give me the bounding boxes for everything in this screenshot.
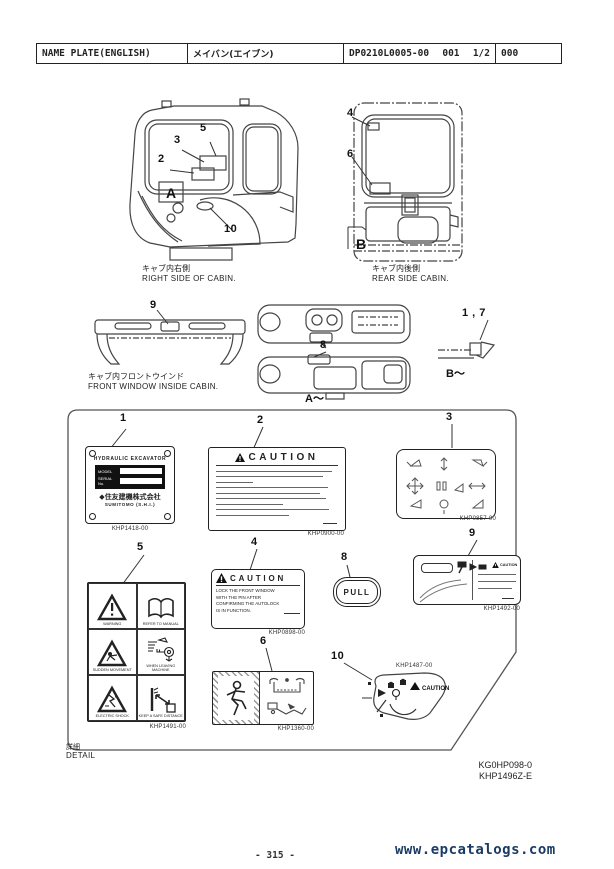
- caution-text-line: CONFIRMING THE AUTOLOCK: [216, 601, 300, 608]
- hammer-break-diagram: [264, 700, 310, 720]
- part-number: KHP1491-00: [126, 724, 186, 730]
- text-line: [216, 487, 328, 488]
- caption-front-window-en: FRONT WINDOW INSIDE CABIN.: [88, 382, 218, 391]
- warning-label: SUDDEN MOVEMENT: [93, 668, 132, 672]
- text-line: [216, 504, 283, 505]
- section-ref-b: B～: [446, 365, 465, 381]
- section-marker-a: A: [166, 185, 176, 201]
- doc-number: DP0210L0005-00: [349, 48, 429, 59]
- brand-ja: 住友建機株式会社: [105, 493, 161, 501]
- front-window-drawing: [85, 298, 255, 378]
- remove-key-icon: [145, 636, 177, 663]
- section-ref-a: A～: [305, 390, 324, 406]
- callout-5-detail: 5: [137, 541, 144, 553]
- curve-lines: [417, 574, 469, 602]
- drawing-ref-1: KG0HP098-0: [430, 760, 532, 771]
- text-line: [216, 471, 332, 472]
- text-line: [216, 482, 253, 483]
- control-pattern-icons: [397, 450, 494, 517]
- caution-text-line: LOCK THE FRONT WINDOW: [216, 588, 300, 595]
- part-number: KHP0900-00: [284, 531, 344, 537]
- caution-title: CAUTION: [248, 452, 318, 463]
- text-line: [216, 493, 320, 494]
- callout-4-detail: 4: [251, 536, 258, 548]
- exit-instruction-cell: [260, 672, 313, 724]
- part-number: KHP0857-00: [436, 516, 496, 522]
- exit-door-frame: [218, 676, 254, 720]
- page-number: - 315 -: [225, 850, 325, 861]
- name-plate: HYDRAULIC EXCAVATOR MODEL SERIAL No. ◆住友…: [85, 446, 175, 524]
- detail-label-en: DETAIL: [66, 751, 95, 760]
- pull-tag: PULL: [333, 577, 381, 607]
- callout-3-cabin: 3: [174, 134, 181, 146]
- callout-6-cabin: 6: [347, 148, 354, 160]
- callout-10-cabin: 10: [224, 223, 237, 235]
- warning-grid-plate: WARNING REFER TO MANUAL SUDDEN MOVEMENT: [87, 582, 186, 722]
- warning-cell: KEEP A SAFE DISTANCE: [137, 675, 186, 721]
- divider: [216, 465, 338, 466]
- callout-9-detail: 9: [469, 527, 476, 539]
- doc-sheet: 001: [442, 48, 459, 59]
- manual-book-icon: [146, 594, 176, 621]
- screw-icon: [89, 513, 96, 520]
- callout-3-detail: 3: [446, 411, 453, 423]
- warning-triangle-icon: [235, 453, 245, 462]
- header-bar: NAME PLATE(ENGLISH) メイバン(エイブン) DP0210L00…: [36, 43, 562, 64]
- model-field-label: MODEL: [98, 469, 118, 474]
- serial-field-label: SERIAL No.: [98, 476, 118, 486]
- header-title-ja: メイバン(エイブン): [188, 44, 344, 63]
- warning-triangle-icon: [492, 562, 499, 568]
- warning-label: WARNING: [103, 622, 121, 626]
- text-line: [216, 476, 323, 477]
- warning-cell: ELECTRIC SHOCK: [88, 675, 137, 721]
- caution-title: CAUTION: [422, 686, 449, 692]
- model-field-value: [120, 468, 162, 474]
- serial-field-value: [120, 478, 162, 484]
- keep-distance-icon: [145, 686, 177, 713]
- pull-label: PULL: [336, 580, 378, 604]
- emergency-exit-plate: [212, 671, 314, 725]
- callout-8-console: 8: [320, 339, 327, 351]
- divider: [216, 585, 300, 586]
- lock-lever-caution-plate: CAUTION: [360, 668, 452, 726]
- caution-title: CAUTION: [230, 574, 286, 583]
- text-line: [478, 588, 512, 589]
- text-line: [216, 509, 329, 510]
- window-push-diagram: [264, 676, 310, 696]
- text-line: [478, 574, 516, 575]
- warning-cell: REFER TO MANUAL: [137, 583, 186, 629]
- callout-5-cabin: 5: [200, 122, 207, 134]
- warning-label: ELECTRIC SHOCK: [96, 714, 129, 718]
- signature-line: [284, 613, 300, 614]
- electric-shock-icon: [97, 686, 127, 713]
- caution-title: CAUTION: [500, 563, 517, 567]
- callout-2-detail: 2: [257, 414, 264, 426]
- text-line: [216, 515, 289, 516]
- callout-1-7-bracket: 1 , 7: [462, 307, 486, 319]
- caution-plate-large: CAUTION: [208, 447, 346, 531]
- part-number: KHP0898-00: [235, 630, 305, 636]
- drawing-ref-2: KHP1496Z-E: [430, 771, 532, 782]
- caption-rear-side-ja: キャブ内後側: [372, 263, 420, 274]
- text-line: [478, 581, 516, 582]
- callout-4-cabin: 4: [347, 107, 354, 119]
- slot-shape: [421, 563, 453, 573]
- part-number: KHP1360-00: [248, 726, 314, 732]
- callout-6-detail: 6: [260, 635, 267, 647]
- warning-cell: WARNING: [88, 583, 137, 629]
- console-drawing: [250, 295, 425, 400]
- warning-label: WHEN LEAVING MACHINE: [139, 664, 184, 672]
- warning-label: REFER TO MANUAL: [143, 622, 179, 626]
- caption-right-side-ja: キャブ内右側: [142, 263, 190, 274]
- warning-label: KEEP A SAFE DISTANCE: [139, 714, 183, 718]
- brand-en: SUMITOMO (S.H.I.): [86, 502, 174, 507]
- name-plate-fields: MODEL SERIAL No.: [95, 465, 165, 489]
- warning-triangle-icon: [216, 573, 227, 583]
- screw-icon: [89, 450, 96, 457]
- callout-1-detail: 1: [120, 412, 127, 424]
- header-doc-cell: DP0210L0005-00 001 1/2: [344, 44, 496, 63]
- callout-2-cabin: 2: [158, 153, 165, 165]
- signature-line: [323, 523, 337, 524]
- hammer-caution-plate: CAUTION: [413, 555, 521, 605]
- part-number: KHP1418-00: [85, 526, 175, 532]
- site-watermark-link[interactable]: www.epcatalogs.com: [395, 842, 556, 858]
- caution-text-line: WITH THE PIN AFTER: [216, 595, 300, 602]
- section-marker-b: B: [356, 236, 366, 252]
- control-pattern-plate: [396, 449, 496, 519]
- screw-icon: [164, 513, 171, 520]
- caption-rear-side-en: REAR SIDE CABIN.: [372, 274, 449, 283]
- hammer-icon: [454, 560, 490, 574]
- rear-side-cabin-drawing: B: [340, 97, 475, 269]
- name-plate-title: HYDRAULIC EXCAVATOR: [86, 456, 174, 462]
- caution-text-line: IS IN FUNCTION.: [216, 608, 251, 615]
- warning-triangle-icon: [97, 594, 127, 621]
- text-line: [216, 498, 326, 499]
- warning-cell: SUDDEN MOVEMENT: [88, 629, 137, 675]
- sudden-movement-icon: [97, 640, 127, 667]
- doc-page: 1/2: [473, 48, 490, 59]
- catalog-page: NAME PLATE(ENGLISH) メイバン(エイブン) DP0210L00…: [0, 0, 614, 869]
- callout-8-detail: 8: [341, 551, 348, 563]
- callout-10-detail: 10: [331, 650, 344, 662]
- front-window-caution-plate: CAUTION LOCK THE FRONT WINDOW WITH THE P…: [211, 569, 305, 629]
- part-number: KHP1492-00: [452, 606, 520, 612]
- caption-front-window-ja: キャブ内フロントウインド: [88, 371, 184, 382]
- caption-right-side-en: RIGHT SIDE OF CABIN.: [142, 274, 236, 283]
- callout-9-window: 9: [150, 299, 157, 311]
- exit-pictogram-cell: [213, 672, 260, 724]
- running-person-icon: [218, 676, 254, 720]
- screw-icon: [164, 450, 171, 457]
- signature-line: [502, 598, 514, 599]
- warning-cell: WHEN LEAVING MACHINE: [137, 629, 186, 675]
- right-side-cabin-drawing: A: [112, 96, 312, 271]
- drawing-refs: KG0HP098-0 KHP1496Z-E: [430, 760, 532, 783]
- doc-rev: 000: [496, 44, 561, 63]
- header-title-en: NAME PLATE(ENGLISH): [37, 44, 188, 63]
